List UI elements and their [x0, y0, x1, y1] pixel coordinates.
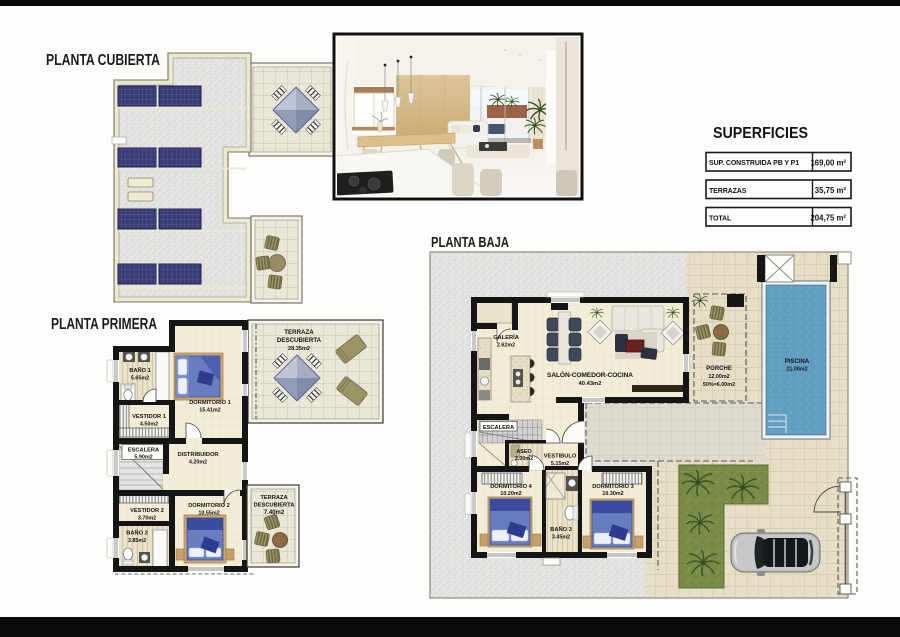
svg-text:ESCALERA: ESCALERA	[128, 448, 159, 454]
svg-text:DISTRIBUIDOR: DISTRIBUIDOR	[177, 452, 218, 458]
svg-text:PISCINA: PISCINA	[785, 359, 810, 365]
svg-text:DORMITORIO 2: DORMITORIO 2	[188, 503, 230, 509]
svg-text:2.62m2: 2.62m2	[497, 343, 515, 349]
svg-text:4.50m2: 4.50m2	[140, 422, 158, 428]
svg-text:TOTAL: TOTAL	[709, 216, 732, 223]
svg-text:PLANTA CUBIERTA: PLANTA CUBIERTA	[46, 52, 160, 69]
svg-text:5.90m2: 5.90m2	[134, 455, 152, 461]
svg-text:2.00m2: 2.00m2	[515, 456, 533, 462]
svg-text:BAÑO 1: BAÑO 1	[129, 367, 151, 374]
svg-text:40.43m2: 40.43m2	[579, 381, 602, 387]
svg-text:12.00m2: 12.00m2	[708, 374, 729, 380]
svg-text:SALÓN-COMEDOR-COCINA: SALÓN-COMEDOR-COCINA	[547, 370, 633, 379]
svg-text:21.00m2: 21.00m2	[786, 367, 807, 373]
svg-text:ASEO: ASEO	[516, 449, 531, 455]
svg-text:DESCUBIERTA: DESCUBIERTA	[254, 503, 295, 509]
svg-text:4.20m2: 4.20m2	[189, 460, 207, 466]
svg-text:TERRAZA: TERRAZA	[260, 495, 287, 501]
svg-text:SUP. CONSTRUIDA PB Y P1: SUP. CONSTRUIDA PB Y P1	[709, 160, 799, 167]
svg-text:10.30m2: 10.30m2	[602, 491, 623, 497]
svg-text:BAÑO 2: BAÑO 2	[126, 530, 148, 537]
svg-text:5.65m2: 5.65m2	[131, 376, 149, 382]
svg-text:35,75 m²: 35,75 m²	[815, 186, 847, 195]
svg-text:50%=6.00m2: 50%=6.00m2	[703, 382, 735, 388]
svg-text:GALERÍA: GALERÍA	[493, 333, 519, 341]
svg-text:169,00 m²: 169,00 m²	[810, 159, 846, 168]
svg-text:28.35m2: 28.35m2	[288, 346, 310, 352]
svg-text:ESCALERA: ESCALERA	[483, 425, 514, 431]
svg-text:10.20m2: 10.20m2	[500, 491, 521, 497]
svg-text:DORMITORIO 3: DORMITORIO 3	[592, 484, 634, 490]
svg-text:5.15m2: 5.15m2	[551, 461, 569, 467]
svg-text:3.85m2: 3.85m2	[128, 538, 146, 544]
svg-text:3.70m2: 3.70m2	[138, 516, 156, 522]
svg-text:DORMITORIO 4: DORMITORIO 4	[490, 484, 532, 490]
svg-text:VESTIDOR 2: VESTIDOR 2	[130, 508, 164, 514]
svg-text:PLANTA BAJA: PLANTA BAJA	[431, 234, 509, 251]
svg-text:3.45m2: 3.45m2	[552, 535, 570, 541]
svg-text:VESTIDOR 1: VESTIDOR 1	[132, 414, 166, 420]
svg-text:10.55m2: 10.55m2	[198, 511, 219, 517]
svg-text:TERRAZAS: TERRAZAS	[709, 188, 747, 195]
svg-text:DORMITORIO 1: DORMITORIO 1	[189, 400, 231, 406]
svg-text:PORCHE: PORCHE	[706, 366, 732, 372]
svg-text:DESCUBIERTA: DESCUBIERTA	[277, 337, 322, 344]
svg-text:15.41m2: 15.41m2	[199, 408, 220, 414]
svg-text:TERRAZA: TERRAZA	[284, 329, 314, 336]
svg-text:204,75 m²: 204,75 m²	[810, 214, 846, 223]
svg-text:SUPERFICIES: SUPERFICIES	[713, 125, 808, 142]
svg-text:PLANTA PRIMERA: PLANTA PRIMERA	[51, 316, 157, 333]
svg-text:VESTIBULO: VESTIBULO	[544, 454, 577, 460]
svg-text:BAÑO 3: BAÑO 3	[550, 526, 572, 533]
